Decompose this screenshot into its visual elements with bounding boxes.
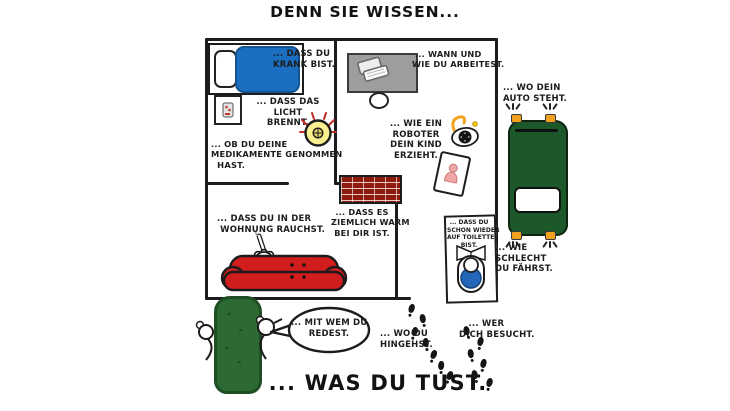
brick-heating-wall — [339, 175, 402, 204]
wall-livingroom-right — [395, 198, 398, 300]
footprint-icon — [419, 314, 428, 328]
baby-mat-icon — [432, 150, 472, 198]
car-light-rear-left — [511, 231, 522, 240]
car-light-front-right — [545, 114, 556, 123]
couch-icon — [220, 232, 348, 304]
blink-rays — [544, 103, 556, 110]
car-icon — [508, 120, 568, 236]
note-visit: ... WER DICH BESUCHT. — [459, 319, 535, 340]
footprint-icon — [437, 361, 445, 375]
blink-rays — [507, 103, 519, 110]
wall-divider-horizontal — [205, 182, 289, 185]
toilet-person-icon — [451, 243, 491, 297]
wall-top — [205, 38, 498, 41]
footprint-icon — [406, 303, 417, 318]
car-light-front-left — [511, 114, 522, 123]
note-car: ... WO DEIN AUTO STEHT. — [503, 83, 567, 104]
car-windshield-line — [515, 129, 558, 132]
gesture-figure-left-icon — [193, 316, 221, 364]
pill-pack-glyph — [222, 102, 234, 118]
illustration-canvas: DENN SIE WISSEN... ... WAS DU TUST. ... … — [0, 0, 730, 411]
car-light-rear-right — [545, 231, 556, 240]
pillow-icon — [214, 50, 237, 88]
robot-crib-icon — [447, 114, 481, 150]
title-bottom: ... WAS DU TUST. — [0, 371, 730, 395]
car-rear-window — [514, 187, 561, 213]
blink-rays — [544, 241, 556, 248]
note-sick: ... DASS DU KRANK BIST. — [273, 49, 335, 70]
note-robot: ... WIE EIN ROBOTER DEIN KIND ERZIEHT. — [387, 119, 445, 162]
stool-icon — [369, 92, 389, 109]
note-talk: ... MIT WEM DU REDEST. — [291, 318, 367, 339]
note-go: ... WO DU HINGEHST. — [380, 329, 433, 350]
footprint-icon — [467, 349, 476, 363]
title-top: DENN SIE WISSEN... — [0, 3, 730, 21]
blink-rays — [507, 241, 519, 248]
note-work: ... WANN UND WIE DU ARBEITEST. — [412, 49, 504, 70]
lightbulb-icon — [298, 110, 338, 148]
pillbox-icon — [214, 95, 242, 125]
laptop-icon — [356, 56, 390, 84]
